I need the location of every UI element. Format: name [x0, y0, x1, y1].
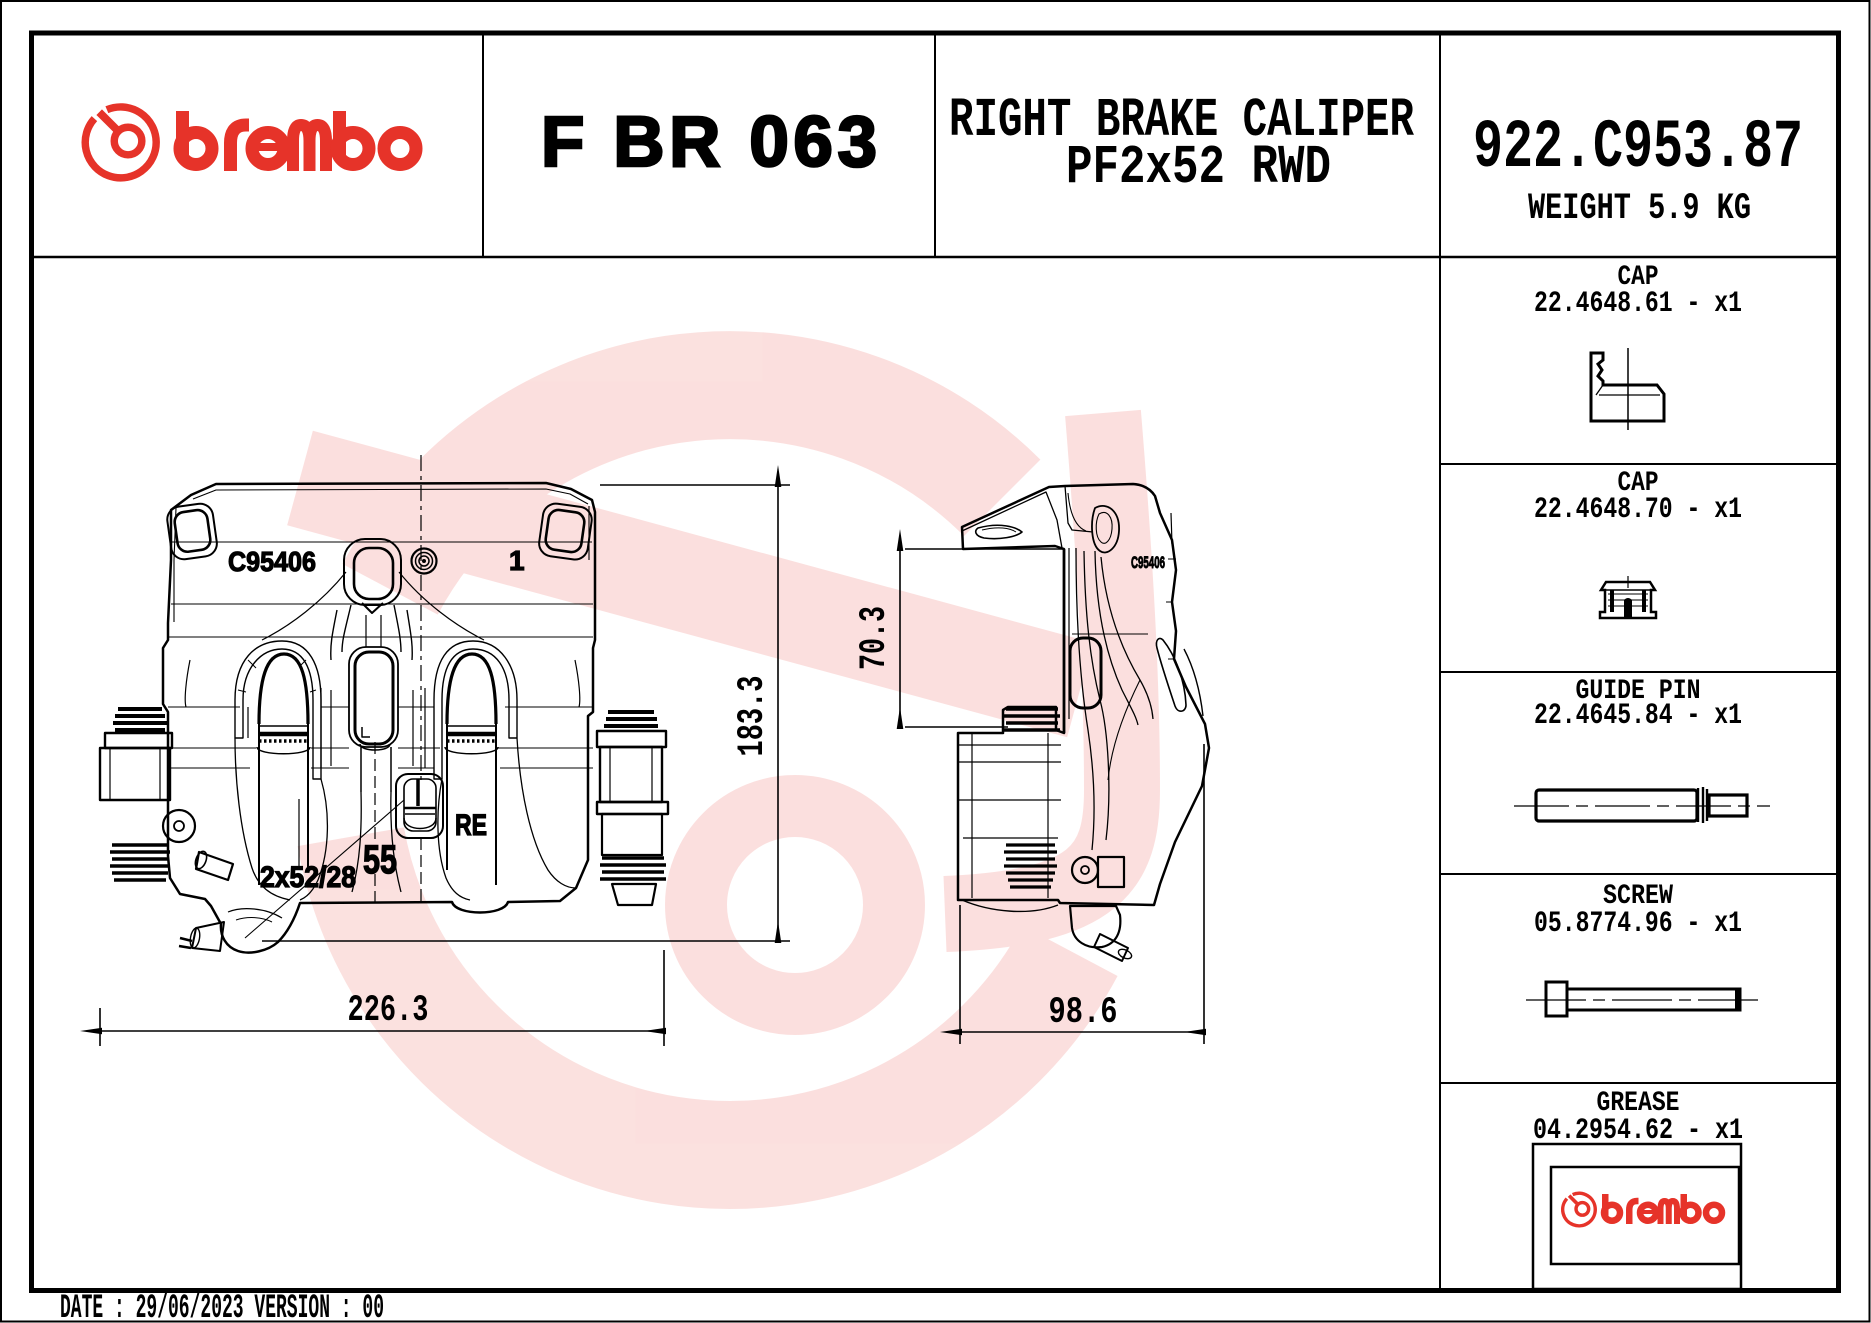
svg-text:1: 1 [509, 545, 525, 576]
svg-text:DATE : 29/06/2023 VERSION : 00: DATE : 29/06/2023 VERSION : 00 [60, 1290, 384, 1323]
svg-text:05.8774.96 - x1: 05.8774.96 - x1 [1534, 907, 1742, 941]
svg-text:22.4648.61 - x1: 22.4648.61 - x1 [1534, 287, 1742, 321]
svg-text:C95406: C95406 [228, 546, 316, 577]
svg-text:55: 55 [363, 838, 397, 882]
svg-text:98.6: 98.6 [1049, 992, 1118, 1034]
svg-text:22.4645.84 - x1: 22.4645.84 - x1 [1534, 699, 1742, 733]
svg-text:WEIGHT 5.9 KG: WEIGHT 5.9 KG [1528, 188, 1751, 230]
svg-text:183.3: 183.3 [732, 676, 774, 757]
svg-text:922.C953.87: 922.C953.87 [1473, 109, 1803, 187]
svg-text:70.3: 70.3 [854, 606, 896, 670]
svg-text:C95406: C95406 [1131, 553, 1165, 572]
svg-text:2x52/28: 2x52/28 [260, 861, 356, 894]
svg-text:22.4648.70 - x1: 22.4648.70 - x1 [1534, 493, 1742, 527]
svg-text:226.3: 226.3 [348, 990, 429, 1032]
svg-text:F BR 063: F BR 063 [541, 103, 877, 182]
svg-text:RE: RE [455, 809, 487, 842]
svg-text:PF2x52 RWD: PF2x52 RWD [1066, 136, 1331, 199]
